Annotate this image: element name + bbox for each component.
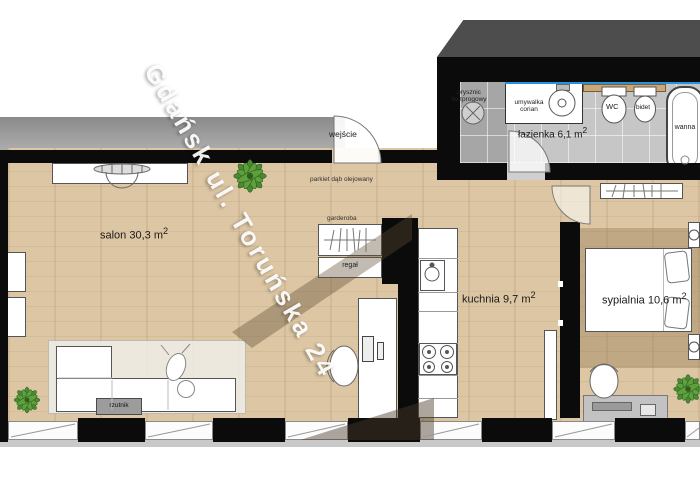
shelf-label: regał (318, 262, 382, 270)
window (145, 421, 213, 440)
nightstand-1 (688, 222, 700, 248)
bed-headboard-line (663, 249, 664, 331)
window (685, 421, 700, 440)
counter-divider (418, 292, 458, 293)
wall-left (0, 150, 8, 442)
sofa-base (56, 378, 236, 412)
room-label-text: kuchnia 9,7 m (462, 294, 530, 306)
shower-label: prysznic bezprogowy (441, 89, 497, 104)
kitchen-counter (418, 228, 458, 418)
window-pier (482, 418, 552, 442)
counter-divider (418, 311, 458, 312)
window (285, 421, 348, 440)
shower-label-line1: prysznic (441, 89, 497, 96)
kitchen-sink-cabinet (420, 260, 445, 291)
desk (358, 298, 397, 432)
wall-socket (558, 281, 563, 287)
vanity-faucet (556, 84, 570, 91)
bedroom-wardrobe (600, 183, 683, 199)
room-label-kitchen: kuchnia 9,7 m2 (462, 290, 536, 306)
bath-wood-shelf (583, 84, 666, 92)
monitor (362, 336, 374, 362)
window-pier (348, 418, 420, 442)
floor-material-label: parkiet dąb olejowany (310, 176, 373, 183)
kitchen-side-counter (544, 330, 557, 420)
nightstand-2 (688, 334, 700, 360)
window (8, 421, 78, 440)
projector-label: rzutnik (96, 402, 142, 409)
tv-console (52, 163, 188, 184)
bidet-label: bidet (636, 104, 650, 111)
wall-socket (558, 320, 563, 326)
room-label-text: salon 30,3 m (100, 230, 163, 242)
wall-bathroom-top (437, 57, 700, 82)
room-label-bathroom: łazienka 6,1 m2 (518, 126, 587, 141)
sup: 2 (682, 291, 687, 301)
washbasin-label-line1: umywalka (506, 99, 552, 106)
window (420, 421, 482, 440)
wardrobe-label: garderoba (327, 215, 357, 222)
sup: 2 (582, 125, 587, 135)
counter-divider (418, 258, 458, 259)
speaker (377, 342, 384, 360)
room-label-bedroom: sypialnia 10,6 m2 (602, 291, 687, 307)
wc-label: WC (606, 103, 619, 112)
sup: 2 (530, 290, 535, 300)
entrance-label: wejście (329, 130, 357, 140)
window-pier (213, 418, 285, 442)
window (552, 421, 615, 440)
wall-bathroom-bottom-right (545, 163, 700, 180)
window-pier (615, 418, 685, 442)
wall-bathroom-bottom-left (437, 163, 507, 180)
counter-divider (418, 398, 458, 399)
washbasin-label: umywalka corian (506, 99, 552, 114)
counter-divider (418, 375, 458, 376)
window-pier (78, 418, 145, 442)
shower-label-line2: bezprogowy (441, 96, 497, 103)
washbasin-label-line2: corian (506, 106, 552, 113)
roof-band (437, 20, 700, 57)
desk-laptop (640, 404, 656, 416)
bathtub-label: wanna (668, 124, 700, 132)
desk-keyboard (592, 402, 632, 411)
wall-kitchen-left (398, 218, 418, 442)
wall-top-left (0, 150, 332, 163)
sup: 2 (163, 226, 168, 236)
wardrobe-cabinet (318, 224, 382, 256)
wall-entrance-right (378, 150, 437, 163)
room-label-text: łazienka 6,1 m (518, 129, 582, 140)
wall-bedroom-left (560, 222, 580, 418)
bathroom-door-threshold (507, 163, 545, 180)
bed (585, 248, 692, 332)
room-label-text: sypialnia 10,6 m (602, 295, 682, 307)
floor-plan: salon 30,3 m2 kuchnia 9,7 m2 sypialnia 1… (0, 0, 700, 500)
room-label-living: salon 30,3 m2 (100, 226, 168, 242)
cooktop (419, 343, 457, 375)
